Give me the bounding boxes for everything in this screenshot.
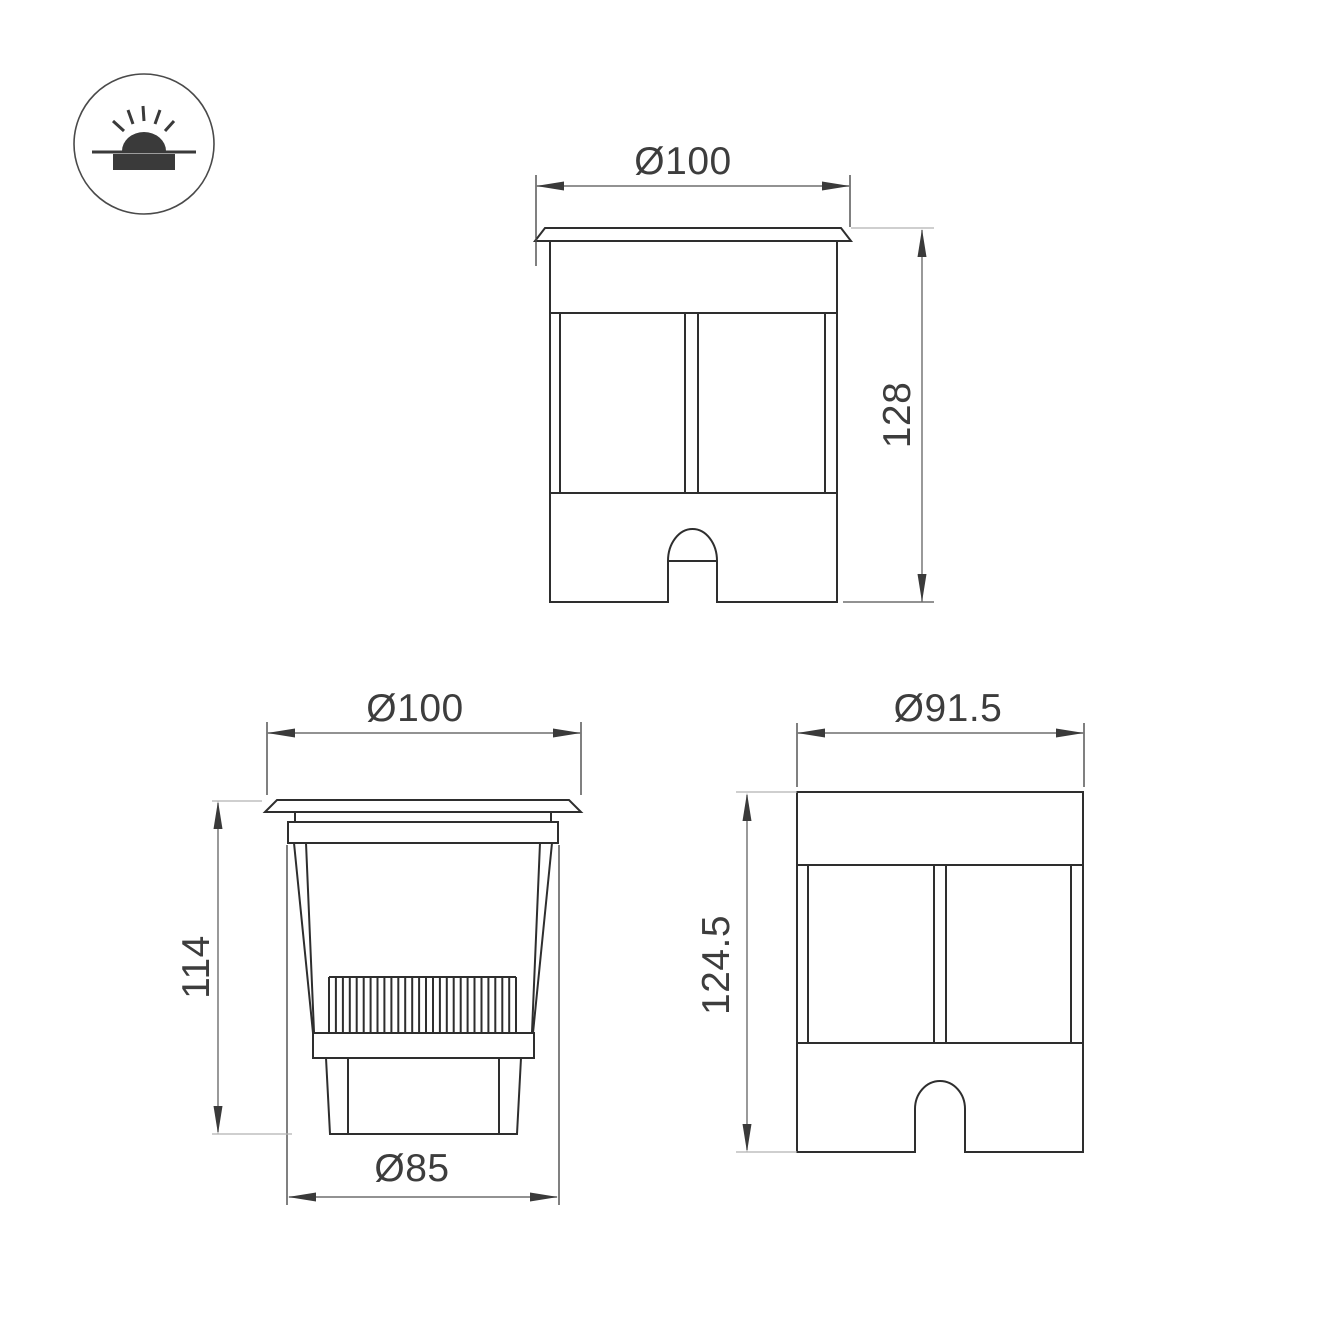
- arrow-left-icon: [288, 1193, 316, 1202]
- side-height-label: 124.5: [695, 915, 738, 1015]
- side-view: Ø91.5 124.5: [695, 687, 1084, 1152]
- side-diameter-label: Ø91.5: [894, 687, 1003, 730]
- side-diameter-dimension: Ø91.5: [797, 687, 1084, 787]
- arrow-up-icon: [743, 793, 752, 821]
- arrow-left-icon: [267, 729, 295, 738]
- recessed-light-icon: [74, 74, 214, 214]
- arrow-left-icon: [536, 182, 564, 191]
- drawing-page: Ø100 128: [0, 0, 1331, 1331]
- front-view-heatsink-plate: [313, 1033, 534, 1058]
- arrow-right-icon: [822, 182, 850, 191]
- front-view-collar: [295, 812, 551, 822]
- arrow-down-icon: [743, 1124, 752, 1152]
- arrow-right-icon: [530, 1193, 558, 1202]
- extension-lines: [736, 792, 797, 1152]
- front-base-diameter-dimension: Ø85: [288, 1147, 558, 1202]
- arrow-right-icon: [553, 729, 581, 738]
- side-height-dimension: 124.5: [695, 792, 797, 1152]
- arrow-up-icon: [214, 801, 223, 829]
- technical-drawing-canvas: Ø100 128: [0, 0, 1331, 1331]
- top-view: Ø100 128: [535, 140, 934, 602]
- arrow-up-icon: [918, 229, 927, 257]
- icon-light-rays: [113, 106, 174, 131]
- front-height-dimension: 114: [175, 801, 292, 1134]
- front-diameter-label: Ø100: [366, 687, 463, 730]
- arrow-down-icon: [214, 1106, 223, 1134]
- arrow-left-icon: [797, 729, 825, 738]
- front-base-diameter-label: Ø85: [374, 1147, 449, 1190]
- icon-recessed-body: [113, 154, 175, 170]
- heatsink-fins: [329, 977, 516, 1033]
- front-diameter-dimension: Ø100: [267, 687, 581, 795]
- front-view-flange: [265, 800, 581, 812]
- top-view-body: [550, 241, 837, 602]
- top-height-label: 128: [876, 382, 919, 449]
- extension-lines: [212, 801, 292, 1134]
- top-height-dimension: 128: [843, 228, 934, 602]
- front-body-inner-walls: [306, 843, 540, 1032]
- front-body-outer-walls: [294, 843, 552, 1033]
- top-diameter-label: Ø100: [634, 140, 731, 183]
- front-height-label: 114: [175, 935, 218, 999]
- icon-light-dome: [122, 132, 166, 151]
- arrow-right-icon: [1056, 729, 1084, 738]
- arrow-down-icon: [918, 574, 927, 602]
- front-view-ring-band: [288, 822, 558, 843]
- front-view: Ø100 114 Ø85: [175, 687, 581, 1205]
- side-view-body: [797, 792, 1083, 1152]
- front-view-base: [326, 1058, 521, 1134]
- top-view-flange: [535, 228, 851, 241]
